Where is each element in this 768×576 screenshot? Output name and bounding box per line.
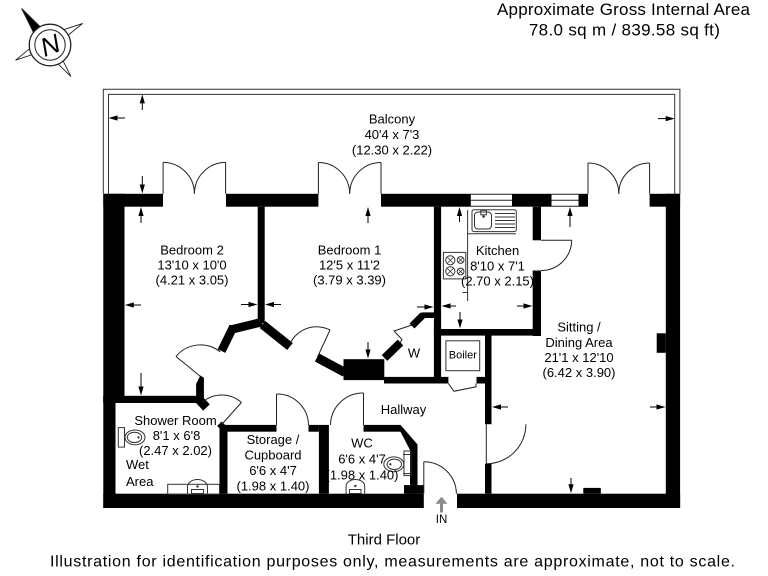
svg-text:8'10 x 7'1: 8'10 x 7'1: [470, 259, 525, 274]
svg-text:Area: Area: [126, 474, 154, 489]
svg-text:Balcony: Balcony: [369, 112, 416, 127]
svg-text:Third Floor: Third Floor: [348, 532, 421, 549]
svg-text:(12.30 x 2.22): (12.30 x 2.22): [352, 143, 432, 158]
svg-text:Shower Room: Shower Room: [134, 413, 216, 428]
svg-text:(1.98 x 1.40): (1.98 x 1.40): [237, 479, 310, 494]
svg-text:(2.70 x 2.15): (2.70 x 2.15): [461, 274, 534, 289]
svg-text:12'5 x 11'2: 12'5 x 11'2: [319, 258, 380, 273]
svg-text:Approximate Gross Internal Are: Approximate Gross Internal Area: [497, 0, 751, 19]
svg-text:Boiler: Boiler: [449, 350, 477, 362]
svg-text:Wet: Wet: [126, 457, 149, 472]
svg-text:6'6 x 4'7: 6'6 x 4'7: [249, 463, 297, 478]
svg-text:W: W: [408, 346, 421, 361]
svg-text:Illustration for identificatio: Illustration for identification purposes…: [50, 554, 735, 571]
svg-text:Kitchen: Kitchen: [476, 243, 519, 258]
svg-text:(6.42 x 3.90): (6.42 x 3.90): [543, 365, 616, 380]
svg-text:WC: WC: [351, 436, 373, 451]
svg-text:40'4 x 7'3: 40'4 x 7'3: [365, 127, 420, 142]
svg-text:8'1 x 6'8: 8'1 x 6'8: [153, 428, 201, 443]
svg-text:Dining Area: Dining Area: [545, 335, 613, 350]
svg-text:Bedroom 1: Bedroom 1: [318, 243, 382, 258]
svg-text:13'10 x 10'0: 13'10 x 10'0: [157, 258, 226, 273]
svg-text:Bedroom 2: Bedroom 2: [160, 243, 224, 258]
svg-text:Storage /: Storage /: [247, 432, 300, 447]
svg-text:78.0 sq m / 839.58 sq ft): 78.0 sq m / 839.58 sq ft): [529, 21, 720, 40]
svg-text:IN: IN: [436, 514, 448, 526]
svg-text:21'1 x 12'10: 21'1 x 12'10: [544, 350, 613, 365]
svg-text:Hallway: Hallway: [381, 402, 427, 417]
svg-text:(2.47 x 2.02): (2.47 x 2.02): [139, 443, 212, 458]
svg-text:6'6 x 4'7: 6'6 x 4'7: [338, 452, 386, 467]
svg-text:(1.98 x 1.40): (1.98 x 1.40): [326, 468, 399, 483]
svg-text:(3.79 x 3.39): (3.79 x 3.39): [313, 273, 386, 288]
svg-text:Sitting /: Sitting /: [557, 320, 601, 335]
svg-text:Cupboard: Cupboard: [244, 448, 301, 463]
svg-text:(4.21 x 3.05): (4.21 x 3.05): [156, 273, 229, 288]
